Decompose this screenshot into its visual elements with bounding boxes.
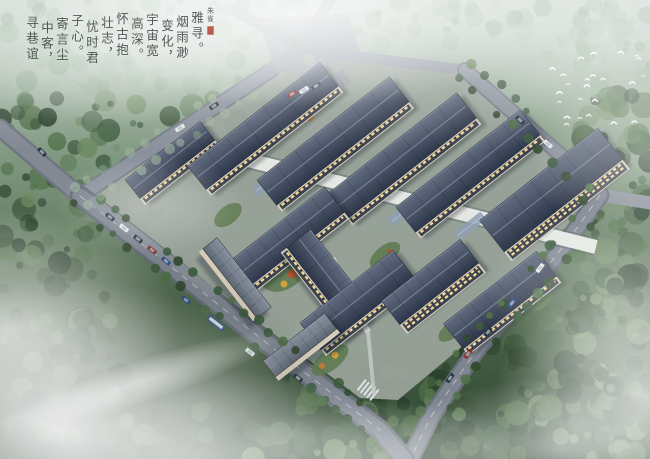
aerial-render	[0, 0, 650, 459]
rendering-stage: 朱雀 雅寻。烟雨渺变化，宇宙宽高深。怀古抱壮志，忧时君子心。寄言尘中客，寻巷谊	[0, 0, 650, 459]
